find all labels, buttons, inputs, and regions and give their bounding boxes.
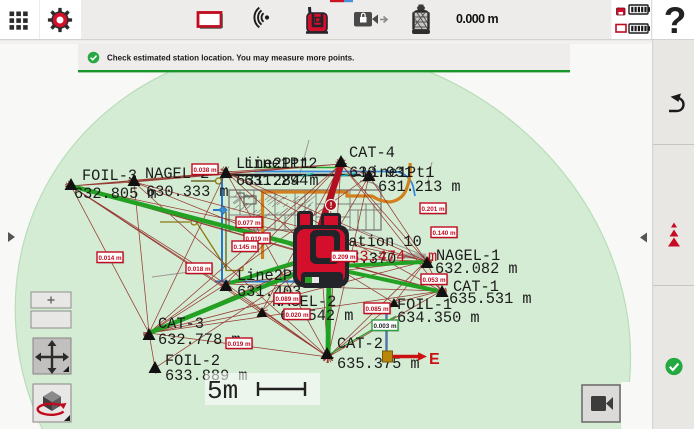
svg-text:631.213 m: 631.213 m: [378, 178, 461, 196]
svg-text:630.333 m: 630.333 m: [146, 183, 229, 201]
svg-text:E: E: [429, 351, 440, 368]
svg-text:CAT-2: CAT-2: [337, 335, 383, 353]
svg-text:0.145 m: 0.145 m: [233, 244, 257, 251]
svg-text:0.000 m: 0.000 m: [456, 12, 498, 26]
svg-text:635.531 m: 635.531 m: [449, 290, 532, 308]
svg-text:?: ?: [664, 0, 687, 41]
svg-text:632.805 m: 632.805 m: [74, 185, 157, 203]
svg-text:0.085 m: 0.085 m: [365, 306, 389, 313]
svg-text:CAT-4: CAT-4: [349, 144, 395, 162]
svg-text:0.053 m: 0.053 m: [422, 277, 446, 284]
svg-text:0.209 m: 0.209 m: [332, 254, 356, 261]
svg-text:0.020 m: 0.020 m: [285, 312, 309, 319]
svg-text:0.201 m: 0.201 m: [421, 206, 445, 213]
svg-text:m: m: [428, 248, 437, 266]
svg-text:5m: 5m: [207, 376, 238, 406]
svg-text:0.018 m: 0.018 m: [187, 266, 211, 273]
svg-text:FOIL-3: FOIL-3: [82, 167, 137, 185]
svg-text:Line1Pt2: Line1Pt2: [244, 155, 317, 173]
svg-text:0.140 m: 0.140 m: [432, 230, 456, 237]
svg-text:0.077 m: 0.077 m: [237, 220, 261, 227]
svg-text:0.014 m: 0.014 m: [98, 255, 122, 262]
svg-text:0.038 m: 0.038 m: [193, 167, 217, 174]
svg-text:0.019 m: 0.019 m: [227, 341, 251, 348]
svg-text:0.089 m: 0.089 m: [275, 296, 299, 303]
svg-text:0.003 m: 0.003 m: [373, 323, 397, 330]
svg-text:!: !: [330, 200, 333, 210]
svg-text:631.294: 631.294: [244, 172, 308, 190]
svg-text:634.350 m: 634.350 m: [397, 309, 480, 327]
svg-text:Check estimated station locati: Check estimated station location. You ma…: [107, 53, 354, 62]
